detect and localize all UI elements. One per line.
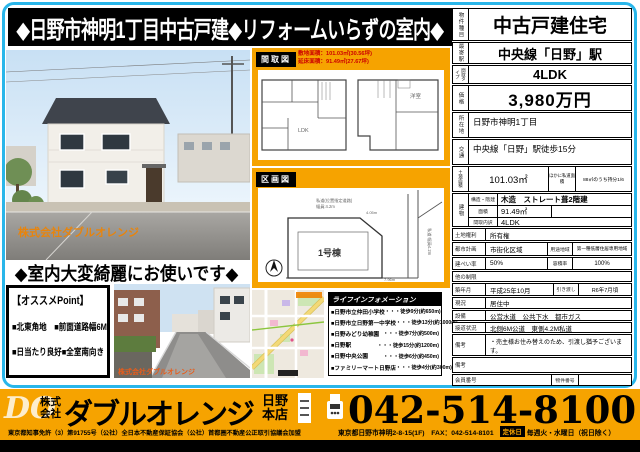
spec-subvalue: [578, 375, 631, 385]
spec-label: 土地権利: [453, 229, 486, 240]
spec-value: 中央線「日野」駅: [469, 43, 631, 63]
spec-label: 都市計画: [453, 243, 486, 255]
office-address: 東京都日野市神明2-8-15(1F) FAX：042-514-8101: [338, 427, 494, 437]
plot-note: 私道(位置指定道路): [316, 197, 353, 204]
area-notes: 敷地面積：101.03㎡(30.56坪) 延床面積：91.49㎡(27.67坪): [298, 51, 372, 66]
life-info-item: ■ファミリーマート日野店 ・・・徒歩4分(約300m): [329, 362, 441, 373]
spec-sublabel: ほかに私道面積: [548, 167, 575, 191]
area-map-illustration: [252, 290, 324, 378]
spec-value: 日野市神明1丁目: [469, 113, 631, 137]
spec-subvalue: 91.49㎡: [498, 206, 552, 217]
company-kabushiki: 株式 会社: [40, 396, 61, 420]
spec-value: 50%: [486, 258, 547, 269]
spec-value: 中央線「日野」駅徒歩15分: [469, 140, 631, 164]
plot-box: 1号棟 私道(位置指定道路) 幅員:4.2m 4.05m 7.96m 私道 幅員…: [258, 188, 444, 282]
floorplan-drawing: LDK 洋室: [258, 70, 444, 160]
floor-area-note: 延床面積：91.49㎡(27.67坪): [298, 59, 372, 67]
street-photo: 株式会社ダブルオレンジ: [114, 284, 250, 378]
spec-label: 間取タイプ: [453, 66, 469, 83]
spec-value: 北側6M公道 東側4.2M私道: [486, 323, 631, 332]
spec-value: 公営水道 公共下水 都市ガス: [486, 311, 631, 320]
street-photo-illustration: 株式会社ダブルオレンジ: [114, 284, 250, 378]
spec-subvalue: 第一種低層住居専用地域: [572, 243, 631, 255]
life-info-item: ■日野みどり幼稚園 ・・・徒歩7分(約500m): [329, 328, 441, 339]
spec-value: 居住中: [486, 298, 631, 308]
room-label: 洋室: [410, 92, 422, 100]
sub-headline: ◆室内大変綺麗にお使いです◆: [2, 262, 252, 284]
holiday-value: 毎週火・水曜日（祝日除く）: [527, 427, 615, 437]
page-title: ◆日野市神明1丁目中古戸建◆リフォームいらずの室内◆: [16, 10, 443, 45]
exterior-photo: 株式会社ダブルオレンジ: [6, 50, 250, 260]
spec-row-remarks2: 備考: [452, 357, 632, 373]
spec-label: 物件種目: [453, 9, 469, 40]
photo-watermark: 株式会社ダブルオレンジ: [118, 367, 195, 376]
life-info-item: ■日野中央公園 ・・・徒歩6分(約450m): [329, 351, 441, 362]
exterior-photo-illustration: 株式会社ダブルオレンジ: [6, 50, 250, 260]
office-address-line: 東京都日野市神明2-8-15(1F) FAX：042-514-8101 定休日 …: [338, 426, 615, 437]
point-item: ■日当たり良好■全室南向き: [12, 344, 87, 358]
spec-row-coverage: 建ぺい率 50% 容積率 100%: [452, 257, 632, 270]
spec-value: 平成25年10月: [486, 284, 553, 295]
spec-row-built: 築年月 平成25年10月 引き渡し R6年7月頃: [452, 283, 632, 296]
sub-headline-text: ◆室内大変綺麗にお使いです◆: [15, 260, 239, 286]
plot-tag: 区画図: [256, 172, 296, 187]
price-value: 3,980万円: [469, 86, 631, 110]
property-spec-table: 物件種目 中古戸建住宅 最寄駅 中央線「日野」駅 間取タイプ 4LDK 価格 3…: [452, 8, 632, 387]
spec-row-road: 接道状況 北側6M公道 東側4.2M私道: [452, 322, 632, 333]
spec-label: 現況: [453, 298, 486, 308]
life-info-item: ■日野市立日野第一中学校 ・・・徒歩13分(約1000m): [329, 317, 441, 328]
plot-dimension: 7.96m: [384, 277, 396, 282]
spec-label: 価格: [453, 86, 469, 110]
spec-row-cityplan: 都市計画 市街化区域 用途地域 第一種低層住居専用地域: [452, 242, 632, 256]
branch-name: 日野 本店: [262, 394, 288, 423]
spec-row-address: 所在地 日野市神明1丁目: [452, 112, 632, 138]
spec-value: 市街化区域: [486, 243, 547, 255]
spec-value: [495, 375, 551, 385]
spec-label: 築年月: [453, 284, 486, 295]
company-name: ダブルオレンジ: [64, 391, 253, 433]
spec-label: 最寄駅: [453, 43, 469, 63]
spec-label: 他の制限: [453, 272, 485, 281]
map-scale-chip: [278, 370, 298, 376]
spec-row-rights: 土地権利 所有権: [452, 228, 632, 241]
spec-subvalue: 100%: [572, 258, 631, 269]
flyer-page: ◆日野市神明1丁目中古戸建◆リフォームいらずの室内◆: [0, 0, 640, 452]
spec-row-member: 会員番号 物件番号: [452, 374, 632, 386]
site-area-note: 敷地面積：101.03㎡(30.56坪): [298, 51, 372, 59]
spec-label: 設備: [453, 311, 486, 320]
spec-subvalue: 88㎡のうち持分1/6: [575, 167, 631, 191]
plot-dimension: 4.05m: [366, 210, 378, 215]
spec-row-price: 価格 3,980万円: [452, 85, 632, 111]
spec-row-access: 交通 中央線「日野」駅徒歩15分: [452, 139, 632, 165]
phone-icon: [326, 393, 344, 423]
footer-strip: 日野市専門 地域密着 情報力が違います。 無料会員登録はこちらから→ http:…: [0, 440, 640, 452]
life-info-title: ライフインフォメーション: [329, 293, 441, 306]
spec-row-utilities: 設備 公営水道 公共下水 都市ガス: [452, 310, 632, 321]
shop-banner-icon: [298, 393, 311, 423]
spec-label: 土地面積: [453, 167, 469, 191]
points-title: 【オススメPoint】: [12, 292, 87, 308]
spec-sublabel: 物件番号: [551, 375, 578, 385]
spec-row-building: 建物 構造・階建 木造 ストレート葺2階建 面積 91.49㎡ 間取内訳 4LD…: [452, 193, 632, 227]
room-label: LDK: [298, 128, 309, 134]
map-watermark-chip: [296, 292, 322, 298]
spec-sublabel: 用途地域: [547, 243, 572, 255]
photo-watermark: 株式会社ダブルオレンジ: [18, 225, 139, 239]
spec-row-remarks: 備考 ・売主様お住み替えのため、引渡し猶予ございます。: [452, 334, 632, 356]
life-info-item: ■日野駅 ・・・徒歩15分(約1200m): [329, 340, 441, 351]
point-item: ■北東角地 ■前面道路幅6M: [12, 319, 87, 333]
spec-row-type: 物件種目 中古戸建住宅: [452, 8, 632, 41]
spec-label: 建ぺい率: [453, 258, 486, 269]
spec-value: ・売主様お住み替えのため、引渡し猶予ございます。: [486, 335, 631, 355]
license-line: 東京都知事免許（3）第91755号（公社）全日本不動産保証協会（公社）首都圏不動…: [8, 428, 301, 437]
spec-row-land: 土地面積 101.03㎡ ほかに私道面積 88㎡のうち持分1/6: [452, 166, 632, 192]
floorplan-box: LDK 洋室: [258, 70, 444, 160]
spec-label: 備考: [453, 358, 485, 372]
spec-subvalue: 木造 ストレート葺2階建: [498, 194, 588, 205]
spec-subvalue: 4LDK: [498, 218, 520, 227]
spec-value: 101.03㎡: [469, 167, 548, 191]
plot-unit-label: 1号棟: [318, 247, 342, 258]
spec-value: 4LDK: [469, 66, 631, 83]
spec-row-other: 他の制限: [452, 271, 632, 282]
plot-drawing: 1号棟 私道(位置指定道路) 幅員:4.2m 4.05m 7.96m 私道 幅員…: [258, 188, 444, 282]
spec-row-station: 最寄駅 中央線「日野」駅: [452, 42, 632, 64]
recommend-points-box: 【オススメPoint】 ■北東角地 ■前面道路幅6M ■日当たり良好■全室南向き: [6, 285, 110, 378]
spec-subvalue: R6年7月頃: [578, 284, 631, 295]
life-info-box: ライフインフォメーション ■日野市立仲田小学校 ・・・徒歩9分(約650m) ■…: [328, 292, 442, 376]
spec-label: 会員番号: [453, 375, 495, 385]
life-info-item: ■日野市立仲田小学校 ・・・徒歩9分(約650m): [329, 306, 441, 317]
spec-value: 所有権: [486, 229, 631, 240]
spec-label: 備考: [453, 335, 486, 355]
plot-note: 幅員:4.2m: [316, 203, 335, 210]
spec-sublabel: 容積率: [547, 258, 572, 269]
title-banner: ◆日野市神明1丁目中古戸建◆リフォームいらずの室内◆: [8, 8, 452, 46]
spec-value: [485, 358, 631, 372]
spec-row-status: 現況 居住中: [452, 297, 632, 309]
holiday-chip: 定休日: [500, 426, 525, 437]
spec-label: 所在地: [453, 113, 469, 137]
spec-row-plan: 間取タイプ 4LDK: [452, 65, 632, 84]
spec-sublabel: 面積: [469, 206, 498, 217]
area-map: [252, 290, 324, 378]
spec-sublabel: 構造・階建: [469, 194, 498, 205]
spec-sublabel: 引き渡し: [553, 284, 578, 295]
spec-sublabel: 間取内訳: [469, 218, 498, 227]
floorplan-tag: 間取図: [256, 52, 296, 67]
spec-label: 交通: [453, 140, 469, 164]
spec-value: 中古戸建住宅: [469, 9, 631, 40]
plot-side-note: 私道 幅員4.2m: [426, 228, 433, 256]
floorplan-panel: 間取図 敷地面積：101.03㎡(30.56坪) 延床面積：91.49㎡(27.…: [252, 48, 450, 166]
spec-label: 建物: [453, 194, 469, 226]
spec-value: [485, 272, 631, 281]
plot-panel: 区画図 1号棟 私道(位置指定道路) 幅員:4.2m 4.05m 7.96m 私…: [252, 168, 450, 288]
spec-label: 接道状況: [453, 323, 486, 332]
